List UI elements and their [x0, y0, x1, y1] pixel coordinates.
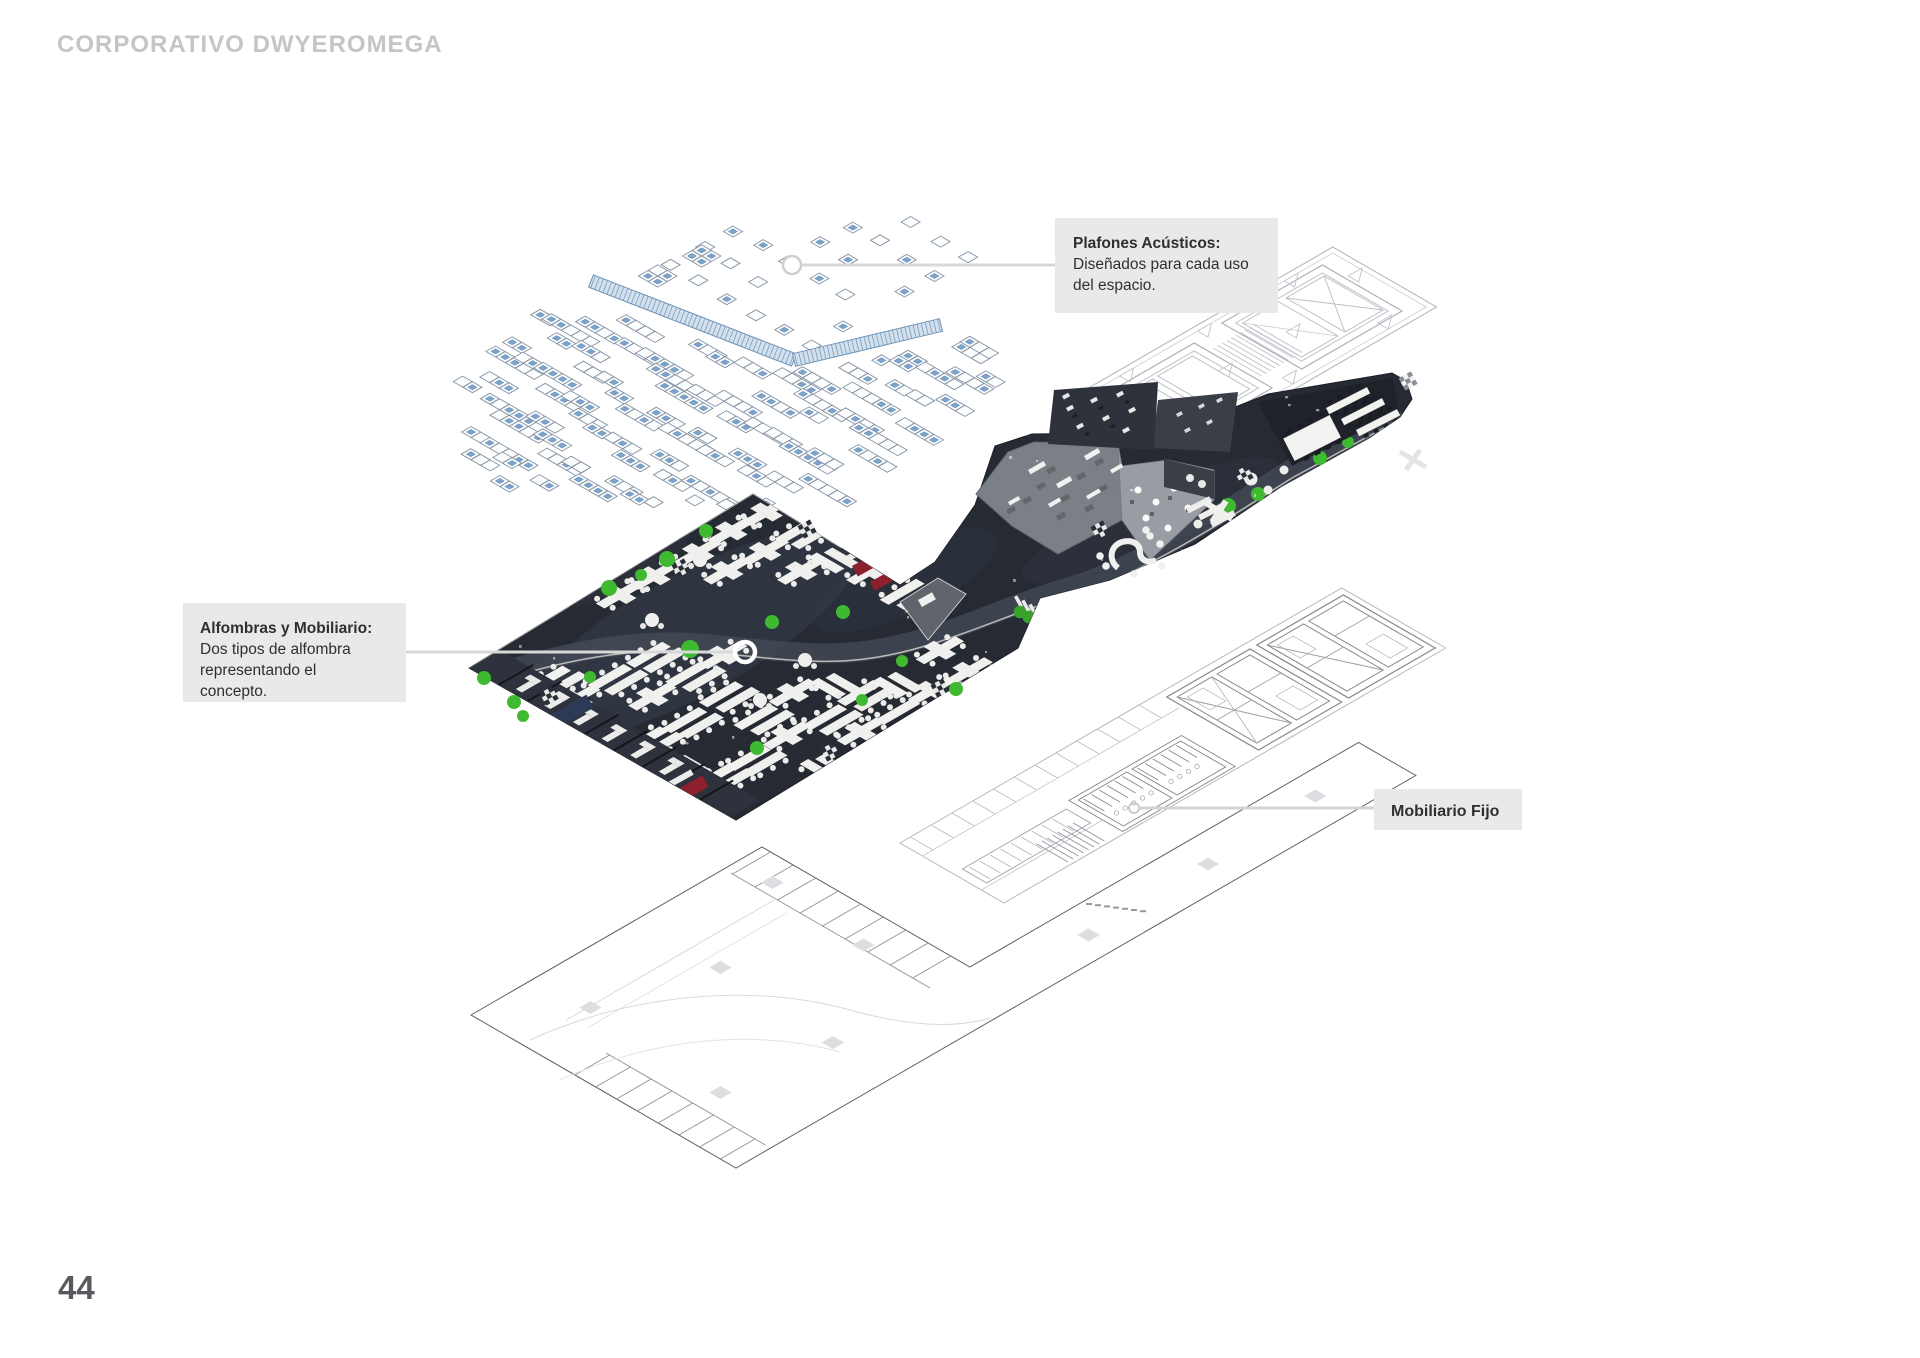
svg-text:Plafones Acústicos:: Plafones Acústicos: [1073, 235, 1221, 252]
svg-text:Mobiliario Fijo: Mobiliario Fijo [1391, 803, 1500, 820]
svg-text:CORPORATIVO DWYEROMEGA: CORPORATIVO DWYEROMEGA [57, 31, 443, 58]
svg-text:Alfombras y Mobiliario:: Alfombras y Mobiliario: [200, 620, 372, 637]
svg-text:del espacio.: del espacio. [1073, 277, 1156, 294]
svg-text:Diseñados para cada uso: Diseñados para cada uso [1073, 256, 1249, 273]
svg-text:representando el: representando el [200, 662, 316, 679]
svg-text:concepto.: concepto. [200, 683, 267, 700]
svg-text:44: 44 [58, 1269, 95, 1306]
svg-text:Dos tipos de alfombra: Dos tipos de alfombra [200, 641, 351, 658]
